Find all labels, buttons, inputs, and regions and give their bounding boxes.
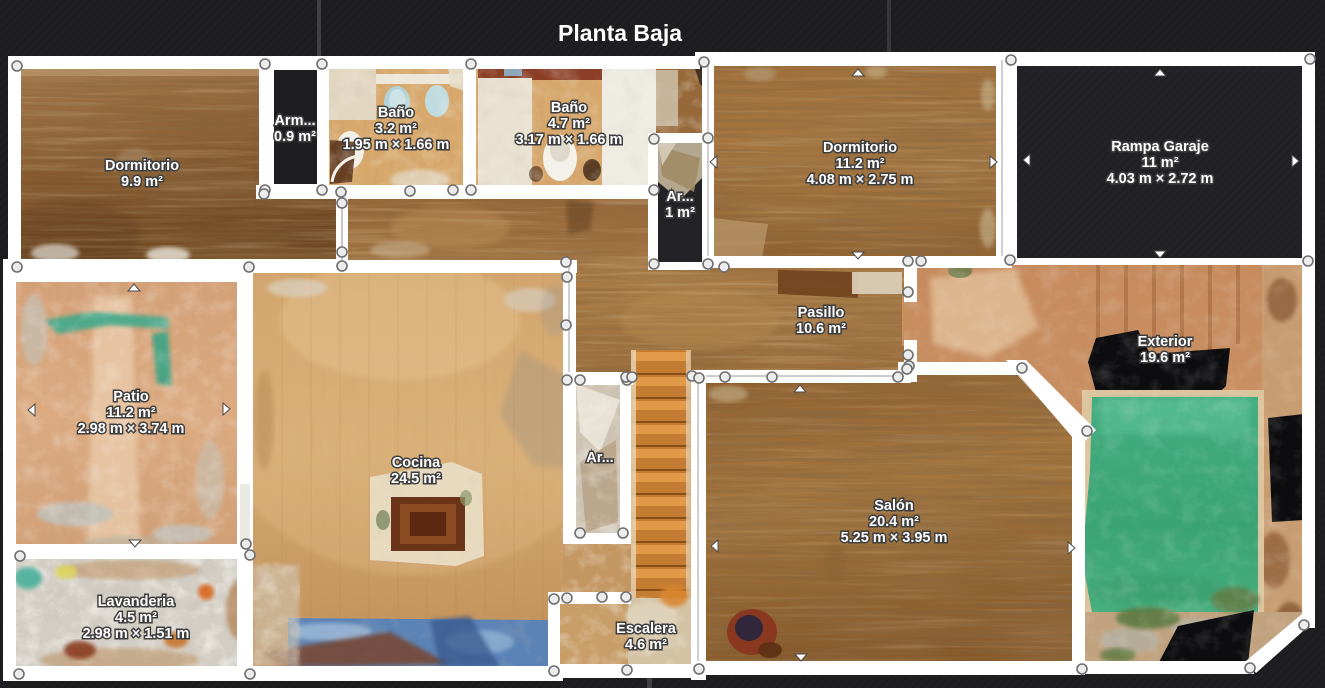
svg-text:Dormitorio: Dormitorio (105, 158, 179, 174)
svg-text:Ar...: Ar... (586, 450, 613, 466)
svg-text:2.98 m × 1.51 m: 2.98 m × 1.51 m (83, 626, 190, 642)
svg-text:Baño: Baño (378, 105, 414, 121)
svg-text:24.5 m²: 24.5 m² (391, 471, 441, 487)
svg-text:4.08 m × 2.75 m: 4.08 m × 2.75 m (807, 172, 914, 188)
svg-text:19.6 m²: 19.6 m² (1140, 350, 1190, 366)
svg-text:11.2 m²: 11.2 m² (106, 405, 155, 421)
svg-text:Cocina: Cocina (392, 455, 441, 471)
svg-text:2.98 m × 3.74 m: 2.98 m × 3.74 m (78, 421, 185, 437)
svg-text:Rampa Garaje: Rampa Garaje (1111, 139, 1209, 155)
svg-text:Arm...: Arm... (274, 113, 315, 129)
svg-text:Patio: Patio (113, 389, 149, 405)
svg-text:Ar...: Ar... (666, 189, 693, 205)
svg-text:Escalera: Escalera (616, 621, 677, 637)
svg-text:10.6 m²: 10.6 m² (796, 321, 846, 337)
svg-text:11 m²: 11 m² (1141, 155, 1178, 171)
svg-text:Lavanderia: Lavanderia (98, 594, 175, 610)
svg-text:9.9 m²: 9.9 m² (121, 174, 163, 190)
svg-text:Pasillo: Pasillo (798, 305, 845, 321)
svg-text:3.2 m²: 3.2 m² (375, 121, 417, 137)
svg-text:1 m²: 1 m² (665, 205, 695, 221)
svg-text:11.2 m²: 11.2 m² (835, 156, 884, 172)
svg-text:4.6 m²: 4.6 m² (625, 637, 667, 653)
svg-text:Baño: Baño (551, 100, 587, 116)
svg-text:5.25 m × 3.95 m: 5.25 m × 3.95 m (841, 530, 948, 546)
svg-text:4.03 m × 2.72 m: 4.03 m × 2.72 m (1107, 171, 1214, 187)
svg-text:0.9 m²: 0.9 m² (274, 129, 316, 145)
svg-text:Exterior: Exterior (1138, 334, 1193, 350)
svg-text:3.17 m × 1.66 m: 3.17 m × 1.66 m (516, 132, 623, 148)
svg-text:20.4 m²: 20.4 m² (869, 514, 919, 530)
svg-text:Planta Baja: Planta Baja (558, 20, 682, 46)
svg-text:4.5 m²: 4.5 m² (115, 610, 157, 626)
svg-text:Dormitorio: Dormitorio (823, 140, 897, 156)
svg-text:Salón: Salón (874, 498, 913, 514)
svg-text:4.7 m²: 4.7 m² (548, 116, 590, 132)
svg-text:1.95 m × 1.66 m: 1.95 m × 1.66 m (343, 137, 450, 153)
